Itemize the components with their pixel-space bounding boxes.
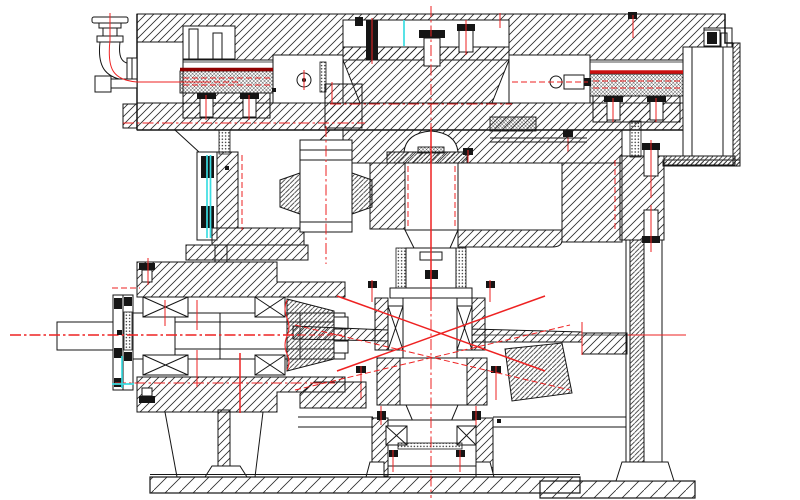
worm-wheel-right [590,72,683,122]
input-shaft-end [57,322,119,350]
gear-chamber-window [458,163,562,230]
drain-plug [95,76,111,92]
cad-drawing-canvas: Black-and-white sectional CAD assembly d… [0,0,800,500]
taper-bearing-left [280,173,300,214]
base-plate-right [540,481,695,498]
right-outer-wall [733,43,740,166]
worm-wheel-left [180,70,273,121]
gear-hub [400,358,467,405]
left-leg-web [218,410,230,466]
sectional-assembly-drawing: Black-and-white sectional CAD assembly d… [0,0,800,500]
base-plate-left [150,477,580,493]
gear-sector-right [505,343,572,401]
left-oil-chamber [137,42,183,103]
right-side-chamber [683,47,733,156]
column-web [630,240,644,462]
gear-sector-left [300,382,366,408]
column-foot [616,462,674,481]
right-support-column [616,121,735,481]
shaft-seal-stack [113,295,133,390]
taper-bearing-right [352,173,372,214]
